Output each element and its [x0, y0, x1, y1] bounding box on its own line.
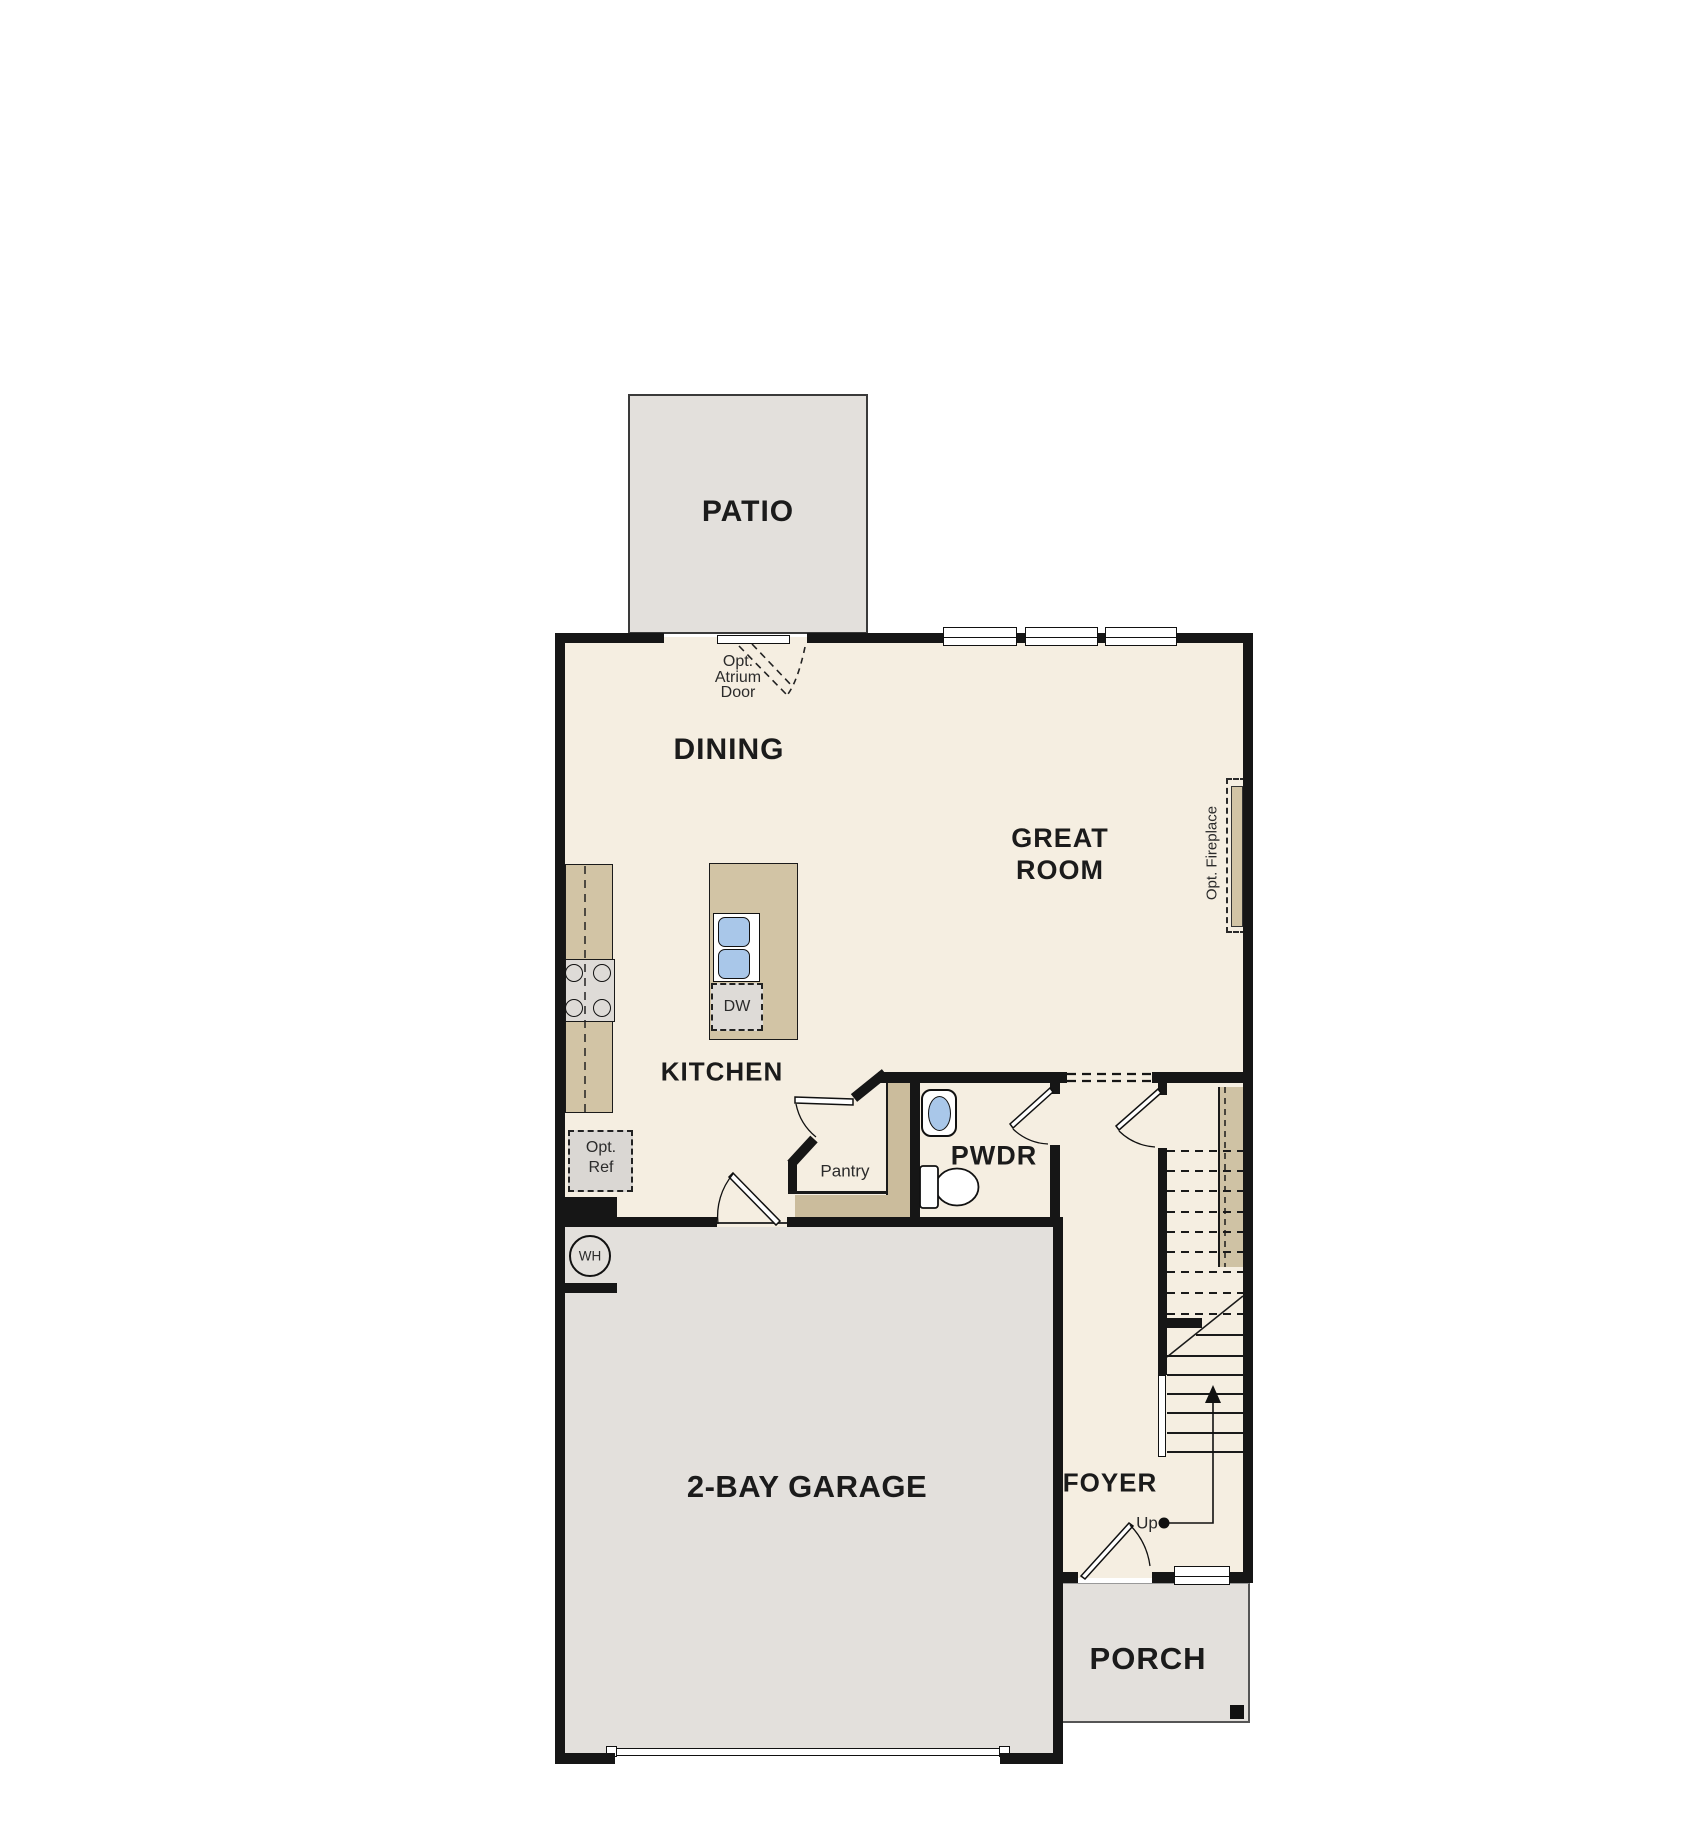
wall-garage-right	[1053, 1217, 1063, 1764]
wall-foyer-south	[1063, 1572, 1078, 1583]
atrium-note-line1: Opt.	[715, 654, 761, 670]
window	[1025, 627, 1098, 646]
wall-pantry-left	[788, 1160, 797, 1194]
stair-upper-strip	[1218, 1087, 1243, 1267]
ref-note-line2: Ref	[586, 1158, 616, 1178]
dishwasher-label: DW	[724, 999, 751, 1015]
wall-powder-right	[1050, 1079, 1060, 1094]
pantry-counter-vertical	[886, 1076, 910, 1195]
window	[1105, 627, 1177, 646]
ref-note-line1: Opt.	[586, 1138, 616, 1158]
pantry-label: Pantry	[820, 1163, 869, 1180]
sink-basin	[718, 917, 750, 947]
burner-icon	[593, 964, 611, 982]
wall-top	[1098, 633, 1105, 643]
stair-railing	[1158, 1375, 1166, 1457]
burner-icon	[565, 999, 583, 1017]
wall-top	[807, 633, 943, 643]
wall-powder-left	[910, 1072, 920, 1218]
garage-label: 2-BAY GARAGE	[687, 1469, 927, 1505]
great-room-label-line2: ROOM	[1011, 854, 1109, 886]
burner-icon	[565, 964, 583, 982]
garage-door-threshold	[717, 1222, 787, 1224]
wall-garage-north	[787, 1217, 1063, 1227]
up-label: Up	[1136, 1515, 1158, 1532]
kitchen-label: KITCHEN	[661, 1057, 784, 1088]
fireplace-note: Opt. Fireplace	[1205, 806, 1220, 900]
wall-foyer-south	[1230, 1572, 1243, 1583]
powder-label: PWDR	[951, 1141, 1038, 1172]
wall-stair	[1158, 1079, 1167, 1095]
dining-label: DINING	[674, 733, 785, 767]
atrium-note-line2: Atrium	[715, 669, 761, 685]
wall-greatroom-south	[878, 1072, 1067, 1083]
powder-sink-basin	[928, 1096, 951, 1131]
patio-label: PATIO	[702, 495, 794, 529]
sink-basin	[718, 949, 750, 979]
wall-stair	[1158, 1148, 1167, 1375]
wall-garage-south	[1000, 1753, 1063, 1764]
wall-top	[1177, 633, 1253, 643]
wh-closet-wall	[563, 1283, 617, 1293]
wall-top	[555, 633, 664, 643]
wall-foyer-south	[1152, 1572, 1174, 1583]
front-sidelite-window	[1174, 1566, 1230, 1585]
foyer-label: FOYER	[1063, 1468, 1158, 1499]
atrium-door-note: Opt. Atrium Door	[715, 654, 761, 701]
great-room-label-line1: GREAT	[1011, 822, 1109, 854]
floor-plan: PATIO DINING GREAT ROOM KITCHEN Pantry P…	[0, 0, 1700, 1836]
wall-garage-south	[555, 1753, 615, 1764]
porch-label: PORCH	[1090, 1641, 1207, 1677]
garage-overhead-door	[615, 1748, 1000, 1756]
burner-icon	[593, 999, 611, 1017]
window	[943, 627, 1017, 646]
opt-ref-note: Opt. Ref	[586, 1138, 616, 1178]
wall-right	[1243, 633, 1253, 1583]
stair-turn-wall	[1167, 1318, 1202, 1328]
wall-powder-right	[1050, 1145, 1060, 1222]
water-heater-label: WH	[579, 1249, 602, 1263]
wall-top	[1017, 633, 1025, 643]
atrium-door-panel	[717, 635, 790, 644]
atrium-note-line3: Door	[715, 685, 761, 701]
wh-closet-wall	[563, 1197, 617, 1217]
great-room-label: GREAT ROOM	[1011, 822, 1109, 886]
pantry-counter-horizontal	[795, 1195, 910, 1217]
wall-garage-north	[555, 1217, 717, 1227]
pantry-south-line	[788, 1191, 886, 1194]
porch-post	[1230, 1705, 1244, 1719]
